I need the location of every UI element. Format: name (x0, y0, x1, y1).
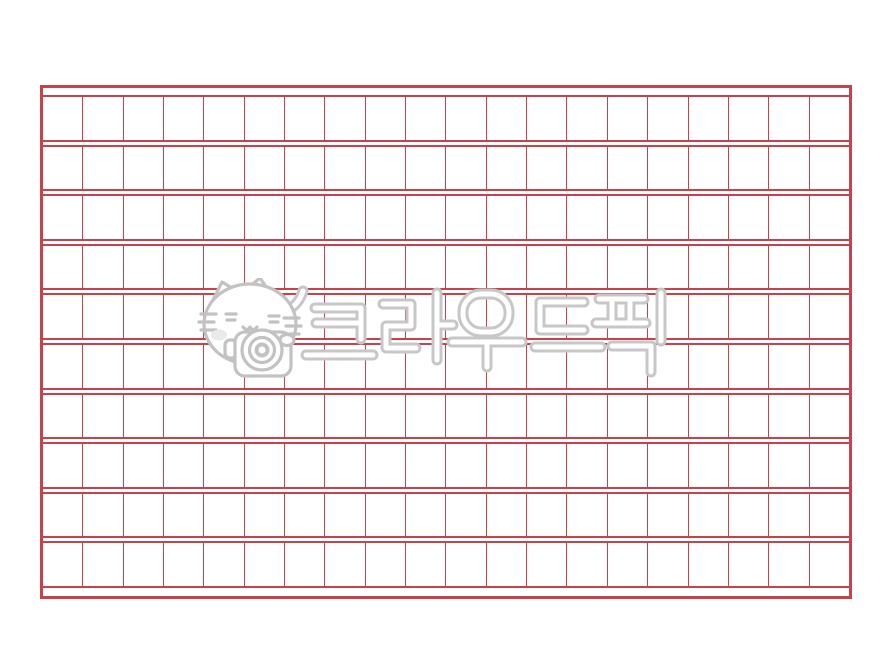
grid-cell (204, 543, 244, 586)
grid-cell (325, 395, 365, 438)
grid-cell (43, 97, 83, 140)
grid-cell (729, 345, 769, 388)
grid-cell (689, 147, 729, 190)
inter-row-strip (43, 487, 849, 494)
inter-row-strip (43, 536, 849, 543)
grid-cell (43, 395, 83, 438)
grid-cell (245, 494, 285, 537)
grid-cell (366, 395, 406, 438)
grid-cell (124, 494, 164, 537)
grid-cell (729, 246, 769, 289)
grid-cell (608, 543, 648, 586)
grid-cell (810, 246, 849, 289)
grid-cell (43, 543, 83, 586)
grid-row (43, 246, 849, 289)
grid-cell (769, 147, 809, 190)
grid-cell (527, 444, 567, 487)
grid-cell (689, 97, 729, 140)
grid-cell (83, 494, 123, 537)
grid-cell (83, 246, 123, 289)
grid-cell (487, 147, 527, 190)
grid-cell (729, 97, 769, 140)
grid-cell (164, 97, 204, 140)
grid-cell (487, 97, 527, 140)
grid-cell (446, 246, 486, 289)
grid-cell (204, 295, 244, 338)
grid-cell (527, 345, 567, 388)
grid-cell (446, 444, 486, 487)
grid-cell (769, 97, 809, 140)
grid-cell (204, 97, 244, 140)
grid-cell (446, 543, 486, 586)
grid-cell (285, 97, 325, 140)
grid-cell (164, 395, 204, 438)
grid-cell (769, 395, 809, 438)
grid-cell (164, 147, 204, 190)
grid-cell (406, 395, 446, 438)
grid-cell (487, 543, 527, 586)
grid-cell (406, 295, 446, 338)
inter-row-strip (43, 88, 849, 97)
grid-cell (164, 345, 204, 388)
grid-cell (285, 147, 325, 190)
grid-cell (124, 147, 164, 190)
grid-cell (487, 196, 527, 239)
inter-row-strip (43, 338, 849, 345)
grid-cell (325, 345, 365, 388)
grid-cell (689, 444, 729, 487)
grid-cell (608, 494, 648, 537)
grid-cell (204, 196, 244, 239)
grid-cell (124, 246, 164, 289)
grid-cell (810, 395, 849, 438)
grid-cell (366, 196, 406, 239)
grid-cell (487, 295, 527, 338)
manuscript-paper-page (0, 0, 895, 650)
grid-cell (487, 246, 527, 289)
grid-cell (285, 295, 325, 338)
grid-cell (527, 246, 567, 289)
grid-cell (325, 196, 365, 239)
grid-cell (769, 196, 809, 239)
grid-cell (406, 444, 446, 487)
grid-cell (689, 295, 729, 338)
grid-cell (810, 295, 849, 338)
grid-cell (124, 543, 164, 586)
grid-cell (83, 295, 123, 338)
grid-cell (245, 543, 285, 586)
grid-cell (648, 295, 688, 338)
grid-cell (43, 246, 83, 289)
grid-cell (124, 395, 164, 438)
grid-cell (83, 196, 123, 239)
grid-cell (406, 97, 446, 140)
grid-cell (527, 196, 567, 239)
grid-cell (446, 494, 486, 537)
grid-cell (285, 246, 325, 289)
grid-cell (124, 295, 164, 338)
inter-row-strip (43, 388, 849, 395)
grid-cell (43, 345, 83, 388)
grid-cell (366, 295, 406, 338)
grid-cell (43, 295, 83, 338)
grid-cell (366, 444, 406, 487)
grid-cell (608, 444, 648, 487)
grid-cell (527, 147, 567, 190)
grid-cell (164, 196, 204, 239)
grid-cell (446, 395, 486, 438)
grid-cell (567, 494, 607, 537)
grid-cell (245, 246, 285, 289)
grid-cell (325, 444, 365, 487)
grid-row (43, 147, 849, 190)
grid-cell (285, 395, 325, 438)
grid-cell (366, 246, 406, 289)
grid-cell (204, 494, 244, 537)
grid-cell (245, 196, 285, 239)
grid-cell (567, 196, 607, 239)
grid-cell (608, 295, 648, 338)
inter-row-strip (43, 140, 849, 147)
grid-cell (810, 444, 849, 487)
inter-row-strip (43, 288, 849, 295)
grid-cell (285, 444, 325, 487)
grid-row (43, 395, 849, 438)
grid-cell (527, 543, 567, 586)
grid-cell (204, 345, 244, 388)
grid-cell (204, 444, 244, 487)
grid-row (43, 345, 849, 388)
grid-cell (406, 345, 446, 388)
grid-cell (406, 543, 446, 586)
grid-cell (43, 494, 83, 537)
grid-cell (43, 196, 83, 239)
grid-cell (810, 345, 849, 388)
grid-cell (608, 147, 648, 190)
grid-cell (245, 345, 285, 388)
grid-cell (487, 395, 527, 438)
grid-cell (83, 97, 123, 140)
grid-cell (487, 345, 527, 388)
grid-cell (83, 395, 123, 438)
grid-row (43, 543, 849, 586)
grid-cell (164, 444, 204, 487)
grid-cell (527, 395, 567, 438)
grid-row (43, 295, 849, 338)
grid-cell (648, 395, 688, 438)
grid-cell (729, 543, 769, 586)
grid-cell (648, 147, 688, 190)
grid-cell (446, 97, 486, 140)
grid-cell (366, 543, 406, 586)
grid-row (43, 97, 849, 140)
grid-cell (729, 147, 769, 190)
grid-cell (689, 196, 729, 239)
grid-cell (689, 543, 729, 586)
grid-cell (164, 494, 204, 537)
grid-cell (769, 494, 809, 537)
grid-cell (769, 444, 809, 487)
grid-cell (769, 543, 809, 586)
grid-cell (43, 444, 83, 487)
grid-row (43, 444, 849, 487)
grid-cell (810, 97, 849, 140)
grid-cell (325, 543, 365, 586)
grid-cell (769, 246, 809, 289)
grid-cell (83, 147, 123, 190)
grid-cell (689, 395, 729, 438)
grid-cell (608, 196, 648, 239)
grid-cell (124, 444, 164, 487)
grid-cell (406, 246, 446, 289)
inter-row-strip (43, 189, 849, 196)
grid-cell (245, 147, 285, 190)
grid-cell (689, 246, 729, 289)
grid-cell (729, 444, 769, 487)
grid-cell (124, 97, 164, 140)
grid-cell (648, 97, 688, 140)
grid-cell (810, 543, 849, 586)
grid-cell (124, 196, 164, 239)
grid-cell (648, 345, 688, 388)
grid-cell (446, 196, 486, 239)
grid-cell (567, 147, 607, 190)
inter-row-strip (43, 586, 849, 596)
grid-cell (325, 147, 365, 190)
grid-cell (689, 345, 729, 388)
grid-cell (406, 494, 446, 537)
grid-cell (567, 97, 607, 140)
grid-cell (164, 543, 204, 586)
grid-cell (204, 147, 244, 190)
grid-cell (567, 246, 607, 289)
grid-row (43, 196, 849, 239)
grid-cell (325, 494, 365, 537)
grid-cell (729, 395, 769, 438)
grid-cell (769, 345, 809, 388)
grid-cell (446, 147, 486, 190)
grid-cell (648, 246, 688, 289)
grid-cell (124, 345, 164, 388)
grid-cell (325, 97, 365, 140)
grid-cell (83, 345, 123, 388)
grid-cell (43, 147, 83, 190)
grid-cell (567, 444, 607, 487)
grid-cell (83, 444, 123, 487)
grid-cell (245, 97, 285, 140)
grid-cell (204, 246, 244, 289)
grid-cell (810, 147, 849, 190)
grid-cell (527, 494, 567, 537)
grid-cell (406, 196, 446, 239)
grid-cell (245, 395, 285, 438)
grid-cell (648, 494, 688, 537)
grid-cell (648, 196, 688, 239)
grid-cell (527, 295, 567, 338)
grid-cell (648, 444, 688, 487)
grid-cell (608, 345, 648, 388)
grid-cell (285, 196, 325, 239)
grid-cell (446, 345, 486, 388)
grid-cell (810, 494, 849, 537)
grid-cell (164, 246, 204, 289)
grid-cell (487, 444, 527, 487)
grid-cell (608, 246, 648, 289)
grid-cell (285, 345, 325, 388)
grid-cell (567, 543, 607, 586)
grid-cell (325, 295, 365, 338)
grid-cell (567, 345, 607, 388)
grid-cell (325, 246, 365, 289)
grid-cell (608, 395, 648, 438)
grid-cell (608, 97, 648, 140)
grid-cell (245, 444, 285, 487)
manuscript-grid (40, 85, 852, 599)
grid-cell (446, 295, 486, 338)
inter-row-strip (43, 239, 849, 246)
grid-cell (366, 147, 406, 190)
grid-cell (204, 395, 244, 438)
grid-cell (164, 295, 204, 338)
grid-cell (729, 295, 769, 338)
grid-cell (366, 345, 406, 388)
grid-cell (729, 494, 769, 537)
grid-cell (567, 295, 607, 338)
grid-cell (527, 97, 567, 140)
grid-cell (689, 494, 729, 537)
grid-cell (245, 295, 285, 338)
grid-cell (406, 147, 446, 190)
grid-cell (729, 196, 769, 239)
grid-cell (810, 196, 849, 239)
grid-row (43, 494, 849, 537)
grid-cell (83, 543, 123, 586)
grid-cell (487, 494, 527, 537)
grid-cell (285, 543, 325, 586)
grid-cell (648, 543, 688, 586)
grid-cell (366, 494, 406, 537)
inter-row-strip (43, 437, 849, 444)
grid-cell (567, 395, 607, 438)
grid-cell (366, 97, 406, 140)
grid-cell (285, 494, 325, 537)
grid-cell (769, 295, 809, 338)
